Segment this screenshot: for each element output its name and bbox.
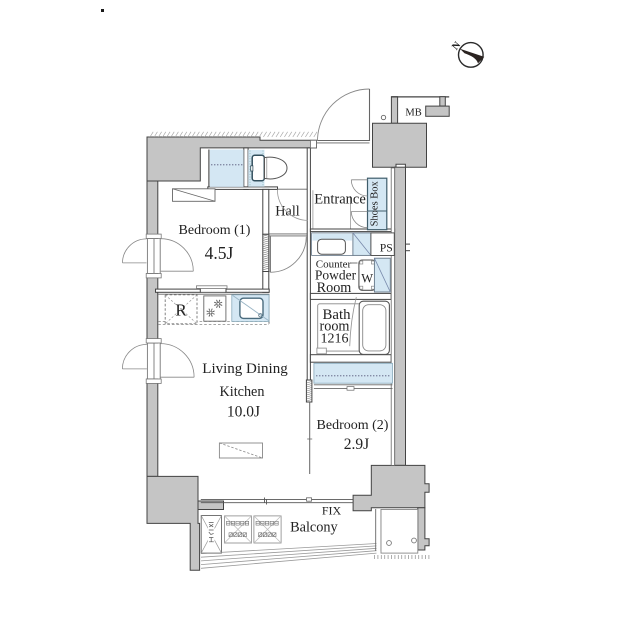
svg-text:W: W (361, 272, 373, 286)
svg-text:Kitchen: Kitchen (220, 384, 265, 400)
svg-text:Balcony: Balcony (290, 520, 338, 536)
svg-text:MB: MB (405, 108, 421, 119)
svg-text:Room: Room (317, 280, 352, 296)
svg-text:Bedroom (2): Bedroom (2) (317, 418, 389, 433)
svg-text:1216: 1216 (321, 332, 349, 347)
svg-text:2.9J: 2.9J (344, 436, 369, 453)
svg-text:10.0J: 10.0J (227, 404, 260, 421)
svg-text:Bedroom (1): Bedroom (1) (179, 223, 251, 238)
svg-text:R: R (175, 301, 187, 320)
svg-text:Hall: Hall (275, 204, 299, 220)
svg-text:Shoes Box: Shoes Box (369, 180, 380, 226)
svg-text:Living Dining: Living Dining (202, 361, 288, 377)
svg-text:4.5J: 4.5J (205, 243, 234, 263)
svg-text:Entrance: Entrance (314, 192, 366, 208)
svg-text:PS: PS (380, 242, 393, 255)
svg-text:FIX: FIX (322, 504, 342, 518)
